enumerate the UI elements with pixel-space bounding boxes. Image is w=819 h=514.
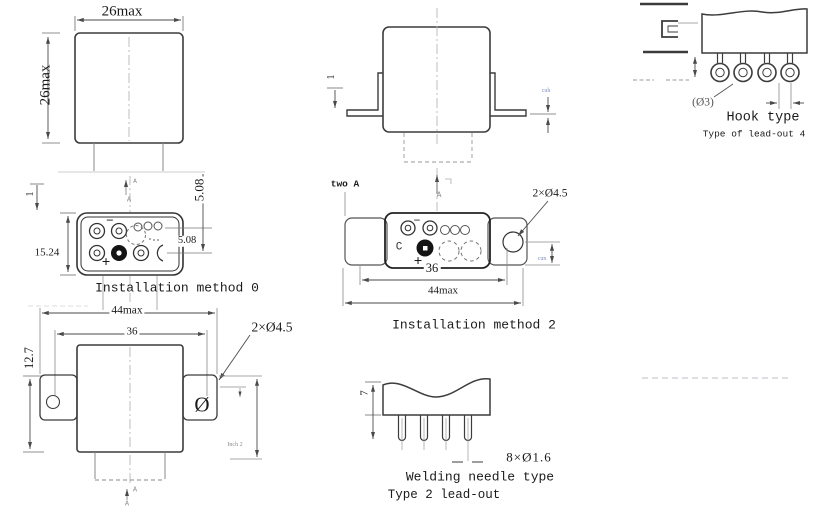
method2-plus-mark: + [414,255,423,270]
top-view-width-dim: 26max [102,5,143,20]
bottom-view-44max-dim: 44max [109,305,144,317]
method2-note: two A [331,179,360,189]
side-view-watermark: cuh [542,88,551,94]
bottom-view-holes-dim: 2×Ø4.5 [252,320,293,334]
bottom-view-section-a2-label: A [125,502,129,509]
method2-holes-dim: 2×Ø4.5 [533,188,568,200]
bottom-view-hole-symbol: Ø [194,395,209,416]
welding-title: Welding needle type [406,471,554,484]
welding-subtitle: Type 2 lead-out [388,489,501,502]
hook-subtitle: Type of lead-out 4 [703,129,806,139]
fig-bottom-view-lines [23,306,262,500]
method2-36-dim: 36 [424,262,441,275]
method0-title: Installation method 0 [95,282,259,295]
hook-dia-dim: (Ø3) [692,97,714,109]
method2-title: Installation method 2 [392,319,556,332]
method0-minus-mark: − [106,214,113,227]
top-view-height-dim: 26max [39,65,54,106]
bottom-view-section-a-label: A [133,488,137,495]
fig-hook-lines [633,4,807,109]
fig-side-view-lines [327,8,556,162]
method0-plus-mark: + [102,256,111,271]
hook-title: Hook type [727,111,800,125]
method0-lip-dim: 1 [26,190,36,199]
method2-c-label: C [396,243,403,254]
method0-section-a-label: A [133,179,137,185]
method0-pitch-v-dim: 5.08 [193,177,206,204]
method0-pitch-h-dim: 5.08 [176,236,198,247]
method2-section-a-label: A [437,192,442,200]
method0-section-a2-label: A [127,198,131,205]
method2-44max-dim: 44max [428,286,458,297]
drawing-linework [0,0,819,514]
method2-minus-mark: − [414,214,421,226]
side-view-lip-dim: 1 [327,75,337,80]
welding-pins-dim: 8×Ø1.6 [506,451,551,464]
welding-height-dim: 7 [360,388,371,398]
bottom-view-36-dim: 36 [125,327,140,338]
method0-height-dim: 15.24 [35,248,60,259]
fig-top-view-lines [42,16,205,195]
relay-dimension-drawing: 26max 26max 1 15.24 5.08 5.08 − + A A In… [0,0,819,514]
bottom-view-height-dim: 12.7 [23,345,36,371]
method2-watermark: cun [538,256,547,262]
bottom-view-note: Inch 2 [227,442,242,448]
fig-welding-lines [365,379,490,462]
